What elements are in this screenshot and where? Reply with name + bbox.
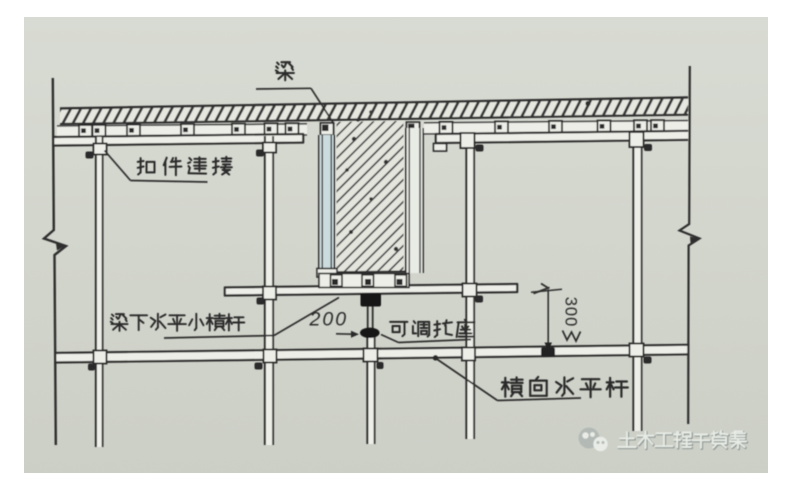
svg-text:300: 300 (562, 297, 580, 328)
svg-text:200: 200 (309, 309, 349, 331)
